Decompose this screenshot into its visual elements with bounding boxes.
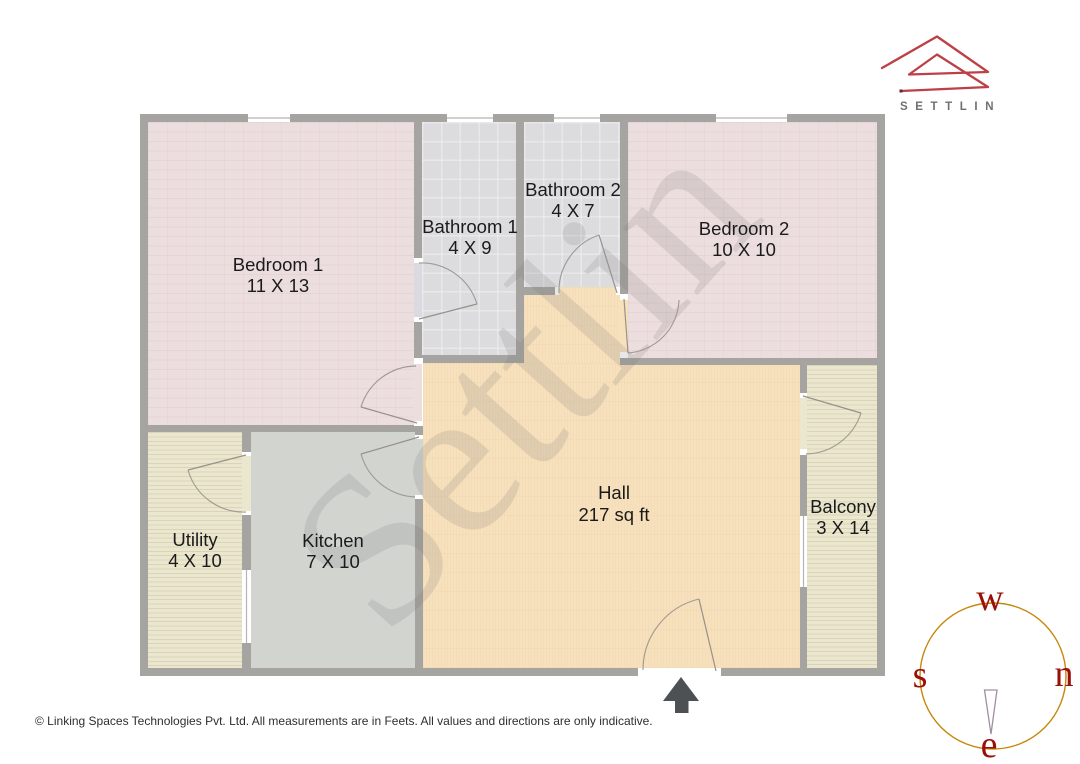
- svg-text:e: e: [981, 724, 998, 764]
- svg-text:n: n: [1055, 653, 1074, 695]
- svg-text:s: s: [913, 654, 928, 696]
- svg-text:Settlin: Settlin: [243, 89, 803, 673]
- svg-text:w: w: [976, 577, 1004, 619]
